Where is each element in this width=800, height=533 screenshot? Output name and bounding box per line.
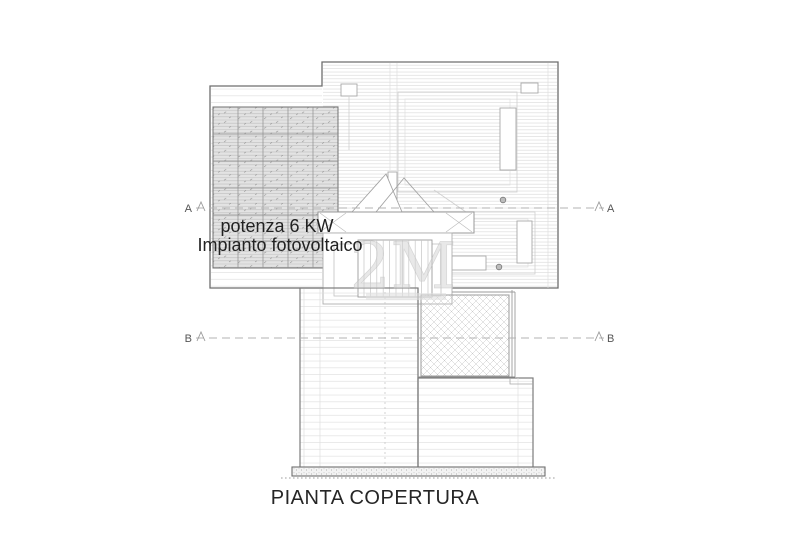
chimney-lower (517, 221, 532, 263)
lower-roof (300, 288, 533, 468)
watermark: 2M (350, 230, 456, 304)
section-cut-icon (197, 332, 205, 341)
watermark-logo: 2M (350, 230, 456, 304)
crosshatch-skylight (421, 295, 509, 376)
roof-vent-box-2 (521, 83, 538, 93)
roof-vent-box (341, 84, 357, 96)
section-b-label-left: B (185, 333, 192, 345)
section-cut-icon (595, 332, 603, 341)
roof-hatch-box (452, 256, 486, 270)
lower-roof-left (300, 288, 418, 468)
chimney-upper (500, 108, 516, 170)
pv-annotation-line2: Impianto fotovoltaico (197, 235, 362, 255)
watermark-subtext-strip (366, 293, 446, 300)
section-a-label-right: A (607, 203, 615, 215)
roof-drain-symbol-2 (496, 264, 502, 270)
pv-annotation-line1: potenza 6 KW (220, 216, 333, 236)
drawing-title: PIANTA COPERTURA (271, 487, 480, 509)
roof-drain-symbol (500, 197, 506, 203)
roof-plan-drawing: 2M A A B B potenza 6 KW Impianto fotovol… (0, 0, 800, 533)
section-cut-icon (595, 202, 603, 211)
section-b-label-right: B (607, 333, 614, 345)
section-a-label-left: A (185, 203, 193, 215)
roof-plan-canvas: 2M A A B B potenza 6 KW Impianto fotovol… (0, 0, 800, 533)
section-cut-icon (197, 202, 205, 211)
base-plate (292, 467, 545, 476)
lower-roof-right (418, 378, 533, 468)
base-ground-line (281, 467, 556, 478)
